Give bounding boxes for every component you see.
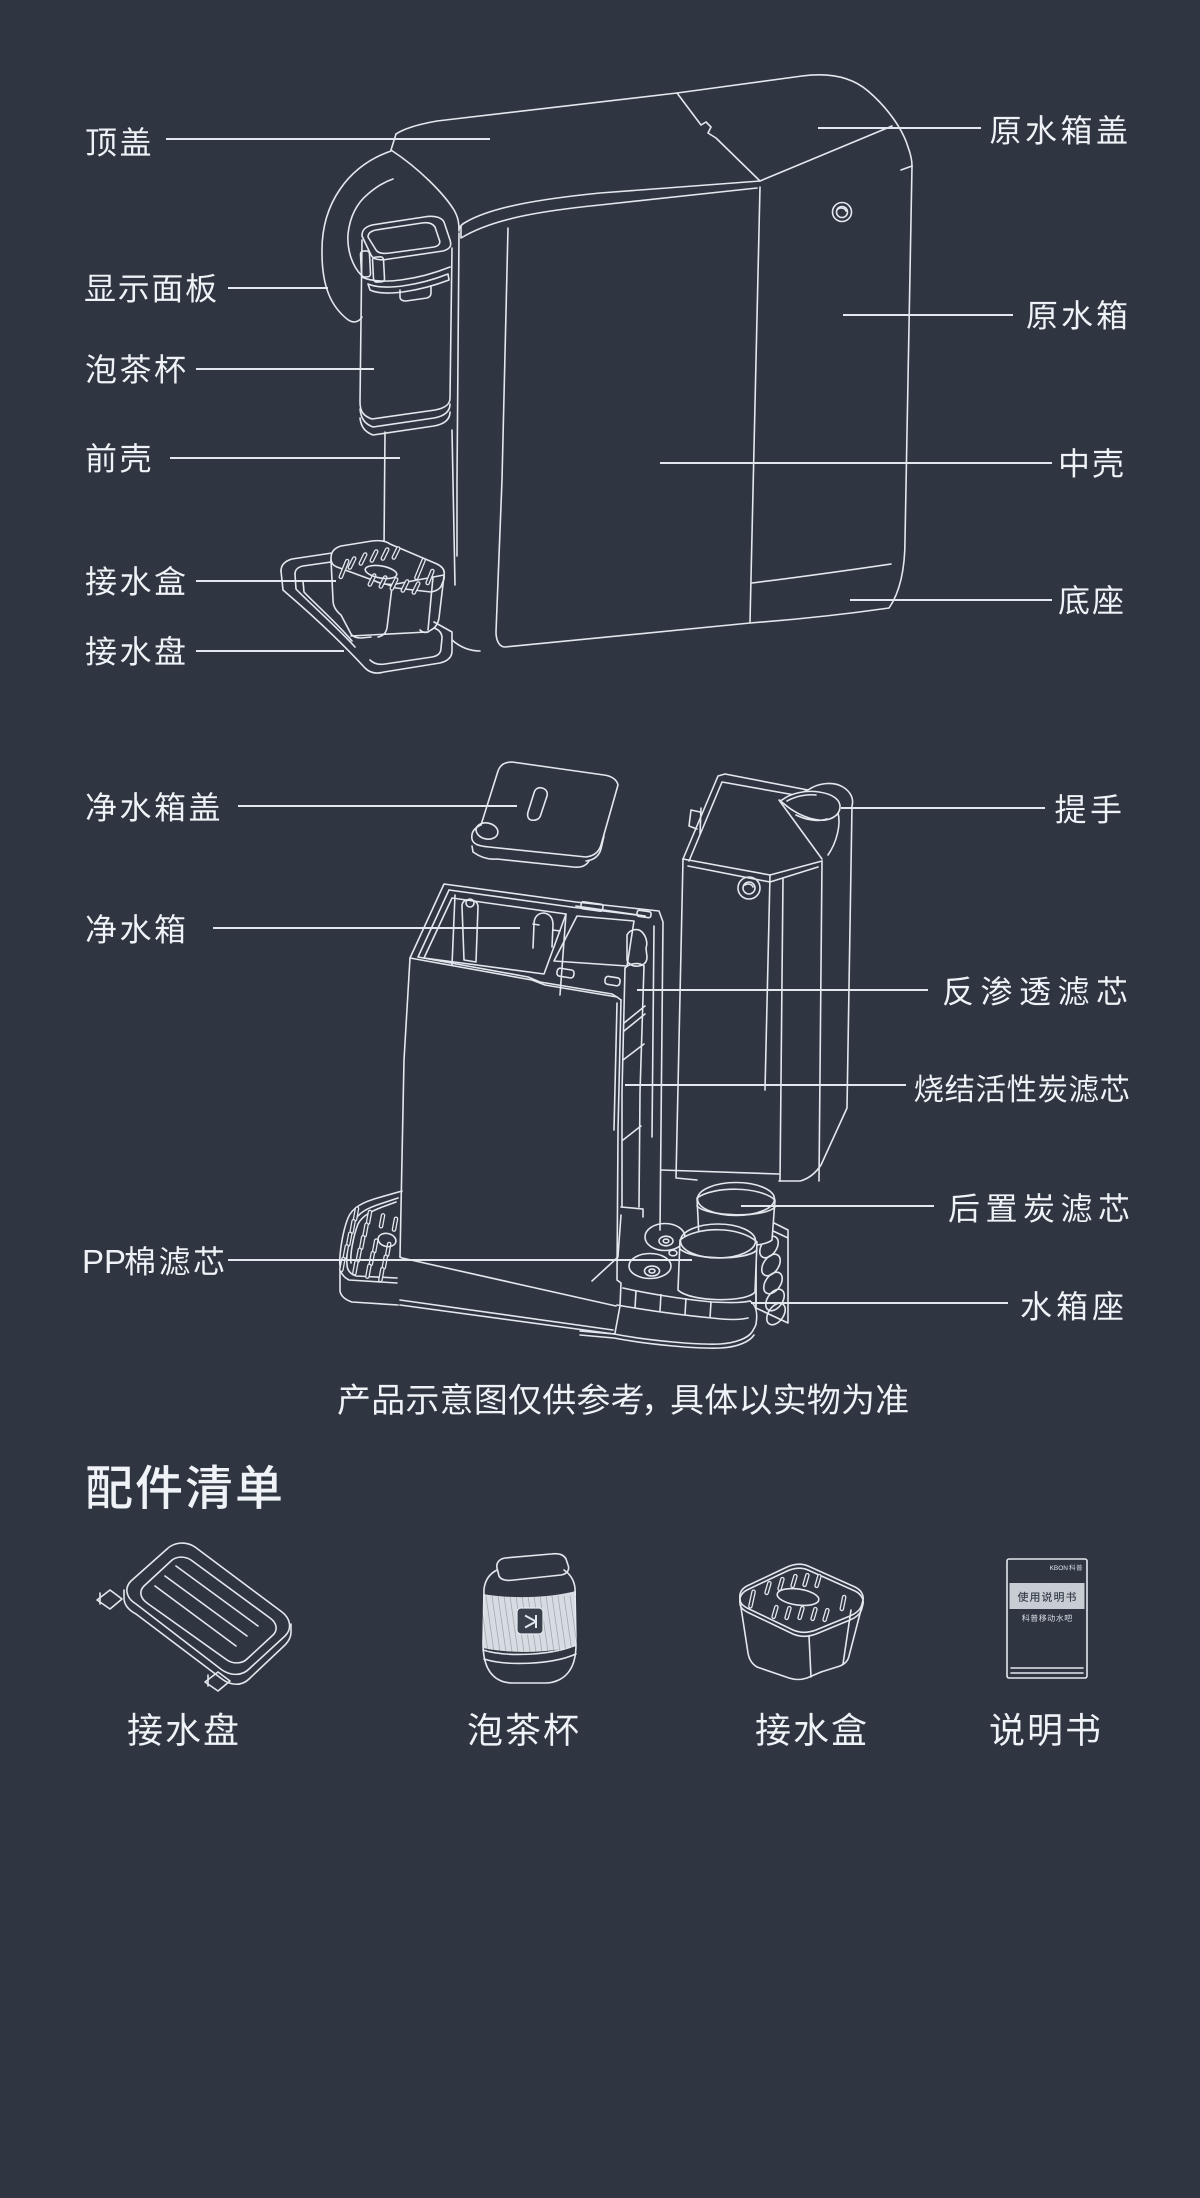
- svg-text:KBON: KBON: [1050, 1565, 1069, 1572]
- svg-text:PP: PP: [82, 1243, 126, 1280]
